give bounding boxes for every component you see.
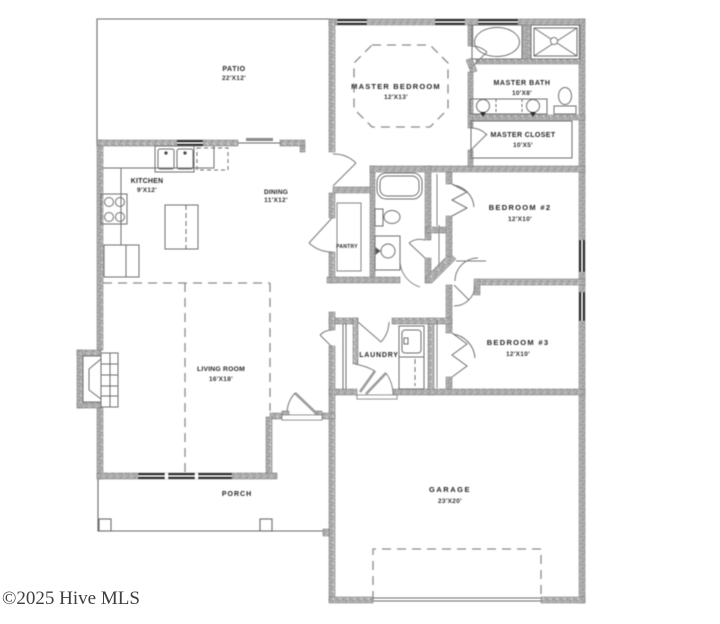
svg-text:MASTER BATH: MASTER BATH — [493, 80, 550, 87]
svg-text:KITCHEN: KITCHEN — [131, 178, 164, 185]
svg-text:PANTRY: PANTRY — [336, 244, 358, 250]
svg-text:10'X8': 10'X8' — [512, 90, 532, 97]
svg-text:MASTER BEDROOM: MASTER BEDROOM — [351, 82, 441, 91]
svg-text:LAUNDRY: LAUNDRY — [359, 352, 399, 359]
svg-text:22'X12': 22'X12' — [222, 75, 246, 82]
svg-text:©2025 Hive MLS: ©2025 Hive MLS — [2, 588, 140, 609]
svg-text:PORCH: PORCH — [222, 491, 252, 498]
svg-text:12'X13': 12'X13' — [384, 94, 408, 101]
svg-text:BEDROOM #3: BEDROOM #3 — [487, 338, 550, 347]
svg-text:BEDROOM #2: BEDROOM #2 — [489, 203, 552, 212]
svg-text:9'X12': 9'X12' — [137, 187, 157, 194]
svg-text:LIVING ROOM: LIVING ROOM — [197, 366, 245, 373]
svg-text:DINING: DINING — [264, 189, 288, 196]
svg-text:MASTER CLOSET: MASTER CLOSET — [490, 132, 555, 139]
svg-text:12'X10': 12'X10' — [506, 351, 530, 358]
svg-text:11'X12': 11'X12' — [264, 197, 288, 204]
svg-text:10'X5': 10'X5' — [513, 142, 533, 149]
svg-text:16'X18': 16'X18' — [209, 376, 233, 383]
svg-text:23'X20': 23'X20' — [438, 498, 462, 505]
svg-text:PATIO: PATIO — [222, 66, 245, 73]
svg-text:GARAGE: GARAGE — [429, 485, 471, 494]
svg-text:12'X10': 12'X10' — [508, 216, 532, 223]
